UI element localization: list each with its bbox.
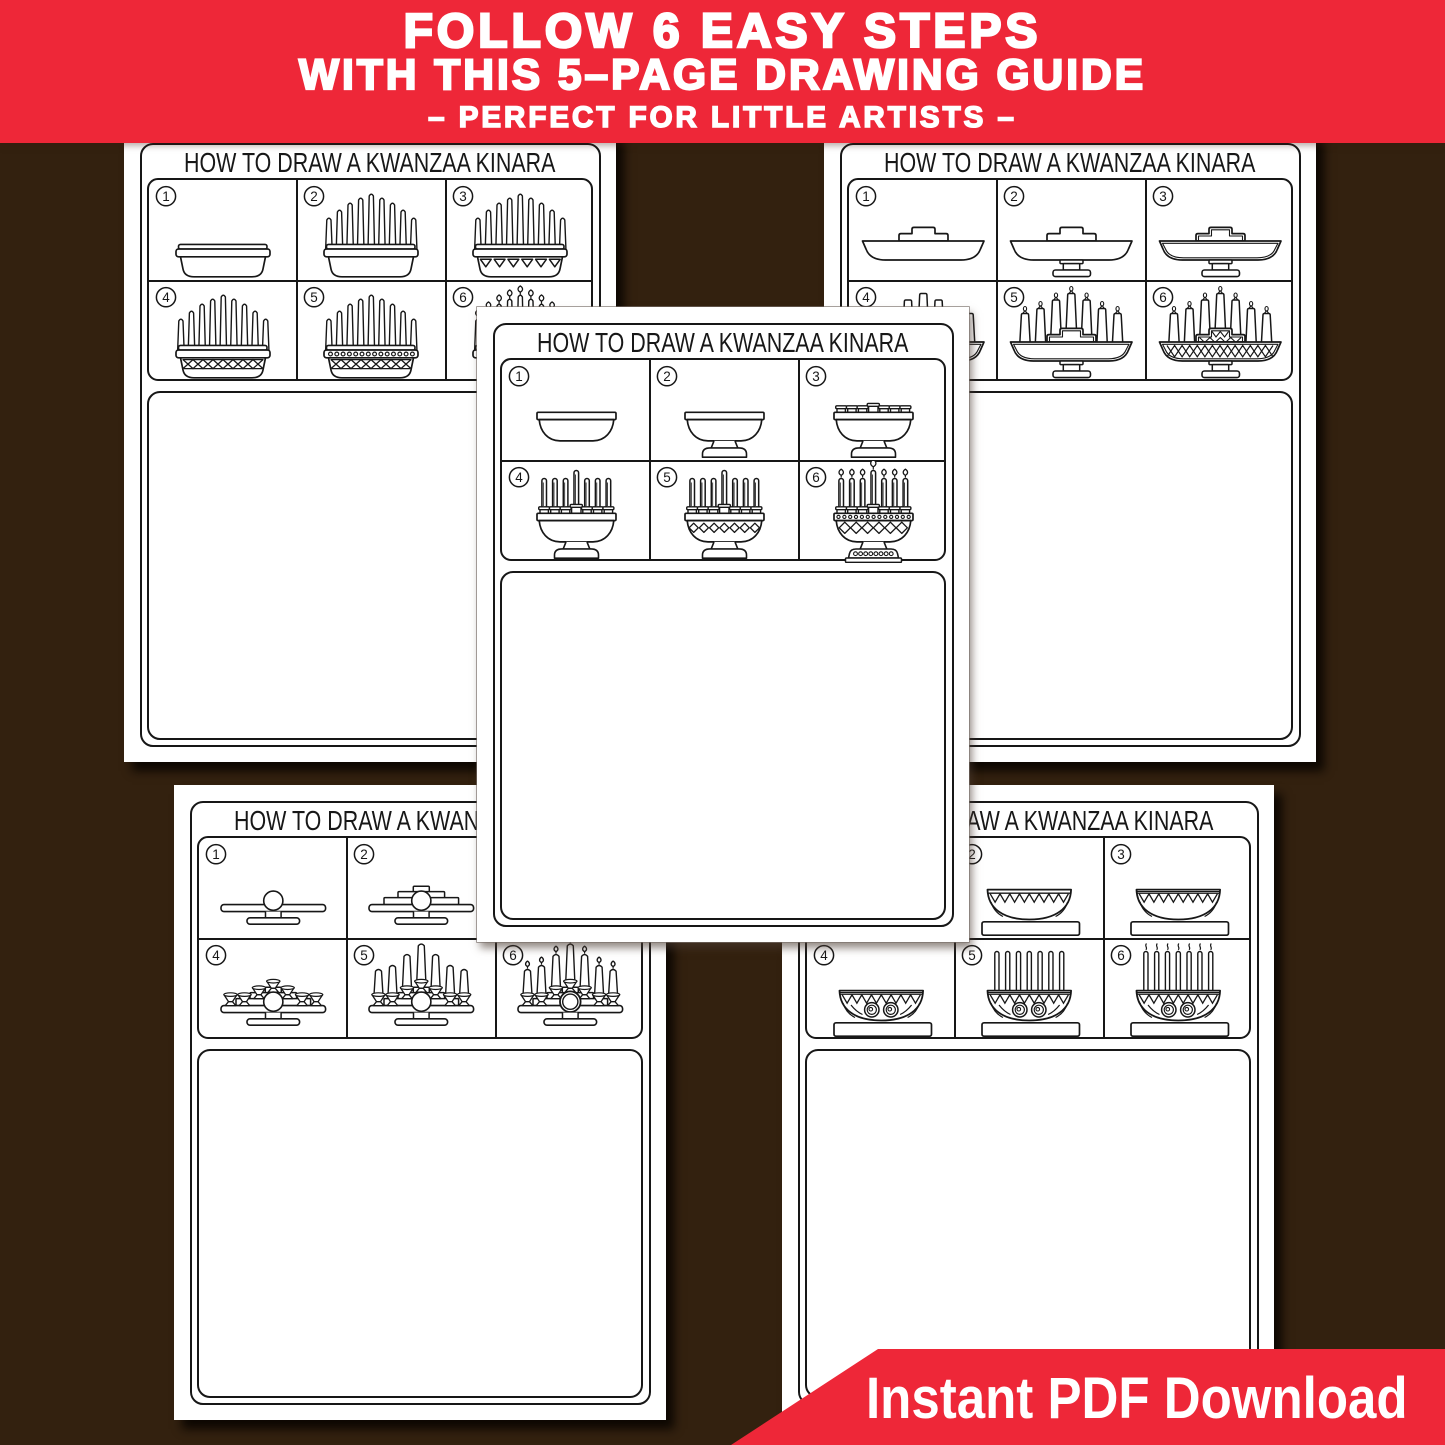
svg-text:4: 4 xyxy=(862,290,870,305)
svg-text:5: 5 xyxy=(1010,290,1018,305)
svg-text:6: 6 xyxy=(1117,948,1125,963)
svg-text:4: 4 xyxy=(162,290,170,305)
svg-text:3: 3 xyxy=(812,369,820,384)
svg-text:2: 2 xyxy=(968,847,976,862)
svg-text:2: 2 xyxy=(310,189,318,204)
svg-text:4: 4 xyxy=(820,948,828,963)
svg-text:4: 4 xyxy=(515,470,523,485)
svg-text:4: 4 xyxy=(212,948,220,963)
svg-text:5: 5 xyxy=(360,948,368,963)
svg-text:6: 6 xyxy=(509,948,517,963)
svg-text:6: 6 xyxy=(1159,290,1167,305)
svg-text:2: 2 xyxy=(1010,189,1018,204)
svg-text:5: 5 xyxy=(663,470,671,485)
svg-text:1: 1 xyxy=(515,369,523,384)
svg-text:6: 6 xyxy=(812,470,820,485)
svg-text:6: 6 xyxy=(459,290,467,305)
svg-text:3: 3 xyxy=(459,189,467,204)
svg-text:5: 5 xyxy=(968,948,976,963)
svg-text:3: 3 xyxy=(1159,189,1167,204)
svg-text:2: 2 xyxy=(360,847,368,862)
svg-text:2: 2 xyxy=(663,369,671,384)
svg-text:3: 3 xyxy=(1117,847,1125,862)
svg-text:5: 5 xyxy=(310,290,318,305)
svg-text:1: 1 xyxy=(212,847,220,862)
svg-text:1: 1 xyxy=(862,189,870,204)
svg-text:1: 1 xyxy=(162,189,170,204)
